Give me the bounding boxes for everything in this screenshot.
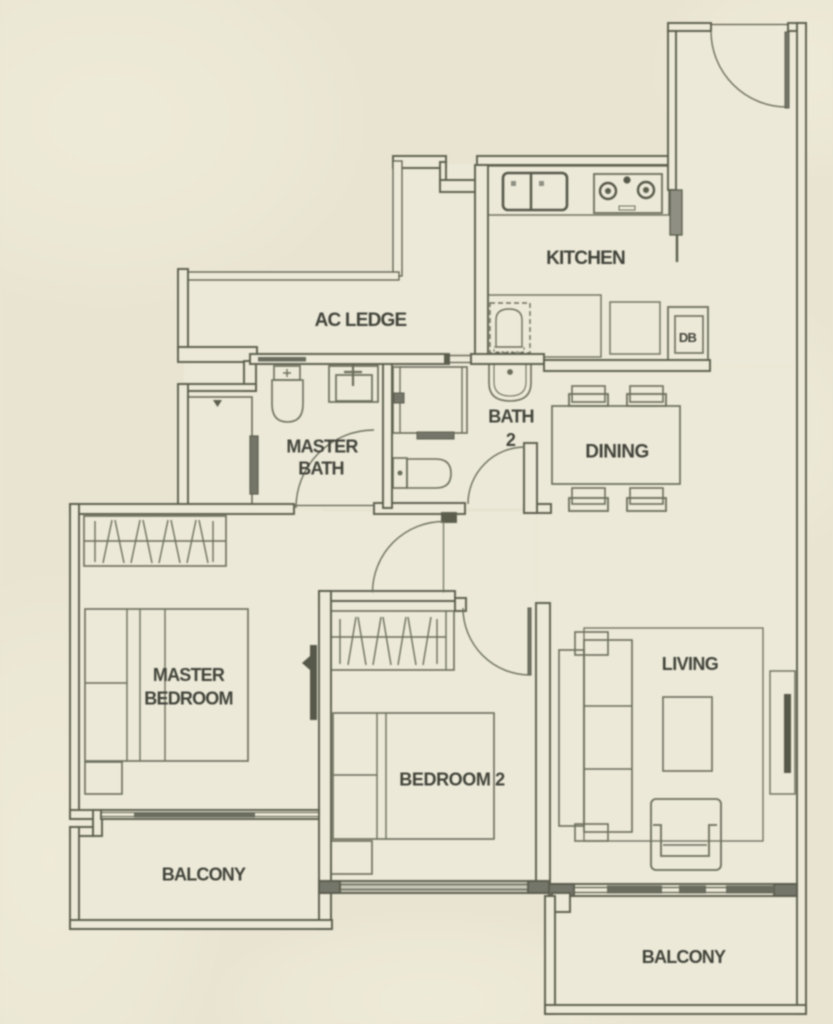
- svg-text:BEDROOM: BEDROOM: [144, 689, 232, 709]
- svg-text:2: 2: [506, 430, 516, 450]
- svg-text:DINING: DINING: [585, 442, 649, 463]
- svg-text:LIVING: LIVING: [662, 654, 718, 674]
- svg-text:DB: DB: [679, 330, 697, 345]
- svg-text:BATH: BATH: [298, 459, 343, 479]
- svg-text:BEDROOM 2: BEDROOM 2: [399, 770, 505, 790]
- svg-text:MASTER: MASTER: [286, 437, 358, 457]
- svg-text:AC LEDGE: AC LEDGE: [315, 310, 407, 331]
- svg-text:BALCONY: BALCONY: [162, 865, 246, 885]
- svg-text:BATH: BATH: [488, 407, 533, 427]
- svg-text:MASTER: MASTER: [153, 665, 225, 685]
- svg-text:KITCHEN: KITCHEN: [546, 248, 625, 269]
- svg-text:BALCONY: BALCONY: [642, 947, 726, 967]
